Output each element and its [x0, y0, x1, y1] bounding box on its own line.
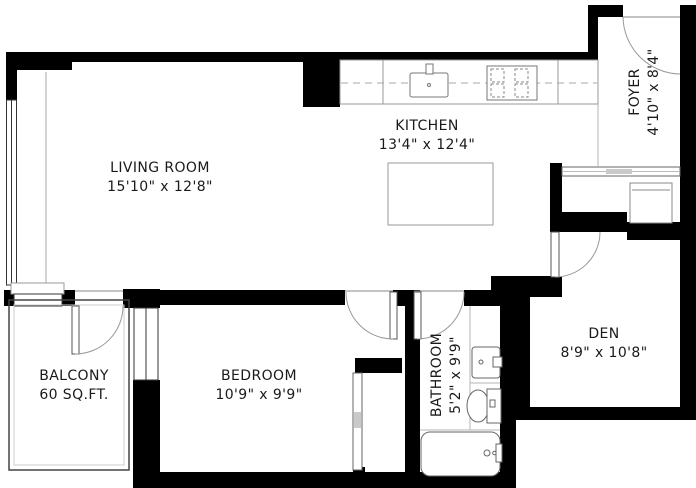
toilet	[467, 389, 501, 423]
room-dims: 10'9" x 9'9"	[169, 386, 349, 405]
foyer-closet-slider	[562, 167, 680, 176]
bedroom-closet-slider	[353, 373, 362, 470]
windows	[7, 72, 159, 380]
kitchen-counter	[340, 60, 598, 104]
room-label-kitchen: KITCHEN 13'4" x 12'4"	[337, 117, 517, 155]
room-label-bedroom: BEDROOM 10'9" x 9'9"	[169, 367, 349, 405]
closet-south-wall	[550, 212, 627, 232]
bedroom-closet-north-wall	[355, 358, 402, 373]
foyer-closet-fixture	[630, 183, 672, 223]
balcony-window	[11, 283, 64, 306]
column-living-kitchen	[303, 52, 340, 107]
floorplan-drawing	[0, 0, 696, 488]
room-dims: 13'4" x 12'4"	[337, 136, 517, 155]
room-name: KITCHEN	[337, 117, 517, 136]
room-name: DEN	[514, 325, 694, 344]
room-name: LIVING ROOM	[70, 159, 250, 178]
room-dims: 4'10" x 8'4"	[645, 32, 664, 152]
room-dims: 15'10" x 12'8"	[70, 178, 250, 197]
room-dims: 5'2" x 9'9"	[447, 305, 466, 445]
stove-icon	[487, 66, 537, 100]
living-bedroom-wall	[160, 290, 345, 305]
bathroom-sink	[472, 347, 502, 378]
room-label-foyer: FOYER 4'10" x 8'4"	[626, 32, 666, 152]
living-room-west-window	[7, 72, 47, 285]
room-area: 60 SQ.FT.	[14, 386, 134, 405]
room-label-den: DEN 8'9" x 10'8"	[514, 325, 694, 363]
bedroom-west-window	[134, 308, 158, 380]
room-label-balcony: BALCONY 60 SQ.FT.	[14, 367, 134, 405]
room-name: BATHROOM	[428, 305, 447, 445]
room-name: BALCONY	[14, 367, 134, 386]
floorplan-canvas: LIVING ROOM 15'10" x 12'8" KITCHEN 13'4"…	[0, 0, 696, 488]
bedroom-west-wall-lower	[133, 380, 160, 488]
west-wall-top	[6, 52, 17, 100]
den-door	[551, 232, 600, 277]
kitchen-island	[388, 163, 493, 225]
room-label-living-room: LIVING ROOM 15'10" x 12'8"	[70, 159, 250, 197]
foyer-top-wall	[588, 5, 623, 17]
den-south-wall	[530, 407, 681, 420]
room-dims: 8'9" x 10'8"	[514, 344, 694, 363]
den-north-wall	[627, 222, 681, 240]
room-name: BEDROOM	[169, 367, 349, 386]
room-label-bathroom: BATHROOM 5'2" x 9'9"	[428, 305, 468, 445]
bedroom-door	[345, 291, 397, 339]
room-name: FOYER	[626, 32, 645, 152]
